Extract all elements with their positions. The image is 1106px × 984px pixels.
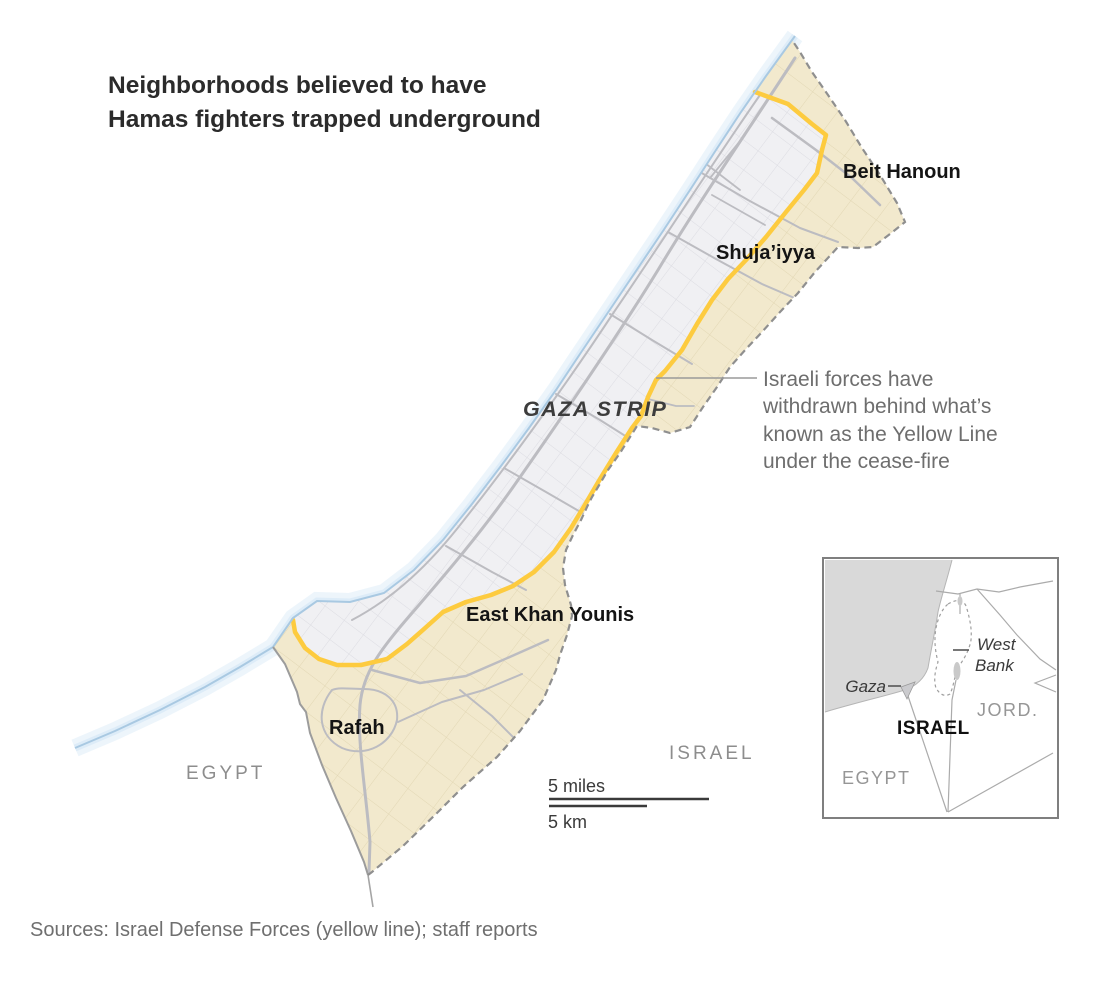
- title-line-2: Hamas fighters trapped underground: [108, 106, 541, 133]
- source-line: Sources: Israel Defense Forces (yellow l…: [30, 919, 538, 941]
- inset-sea-of-galilee: [958, 596, 963, 606]
- annotation-line-1: Israeli forces have: [763, 368, 933, 391]
- inset-label-west: West: [977, 635, 1017, 654]
- inset-label-bank: Bank: [975, 656, 1015, 675]
- inset-dead-sea: [954, 662, 961, 680]
- inset-label-egypt: EGYPT: [842, 768, 911, 788]
- yellow-line-annotation: Israeli forces have withdrawn behind wha…: [762, 368, 998, 473]
- label-egypt: EGYPT: [186, 763, 265, 784]
- gaza-map-svg: Neighborhoods believed to have Hamas fig…: [0, 0, 1106, 984]
- label-east-khan-younis: East Khan Younis: [466, 604, 634, 626]
- scale-km-label: 5 km: [548, 812, 587, 832]
- locator-inset: Gaza West Bank ISRAEL JORD. EGYPT: [823, 558, 1058, 818]
- annotation-line-2: withdrawn behind what’s: [762, 395, 991, 418]
- label-shujaiyya: Shuja’iyya: [716, 242, 816, 264]
- scale-miles-label: 5 miles: [548, 776, 605, 796]
- annotation-line-3: known as the Yellow Line: [763, 423, 998, 446]
- chart-title: Neighborhoods believed to have Hamas fig…: [108, 72, 541, 133]
- label-rafah: Rafah: [329, 717, 385, 739]
- scale-bar: 5 miles 5 km: [548, 776, 709, 832]
- inset-label-jordan: JORD.: [977, 700, 1039, 720]
- label-israel: ISRAEL: [669, 743, 755, 764]
- map-graphic: Neighborhoods believed to have Hamas fig…: [0, 0, 1106, 984]
- inset-label-israel: ISRAEL: [897, 718, 970, 739]
- annotation-line-4: under the cease-fire: [763, 450, 950, 473]
- title-line-1: Neighborhoods believed to have: [108, 72, 486, 99]
- inset-label-gaza: Gaza: [845, 677, 886, 696]
- egypt-israel-border: [368, 875, 373, 907]
- label-gaza-strip: GAZA STRIP: [523, 397, 667, 421]
- label-beit-hanoun: Beit Hanoun: [843, 161, 961, 183]
